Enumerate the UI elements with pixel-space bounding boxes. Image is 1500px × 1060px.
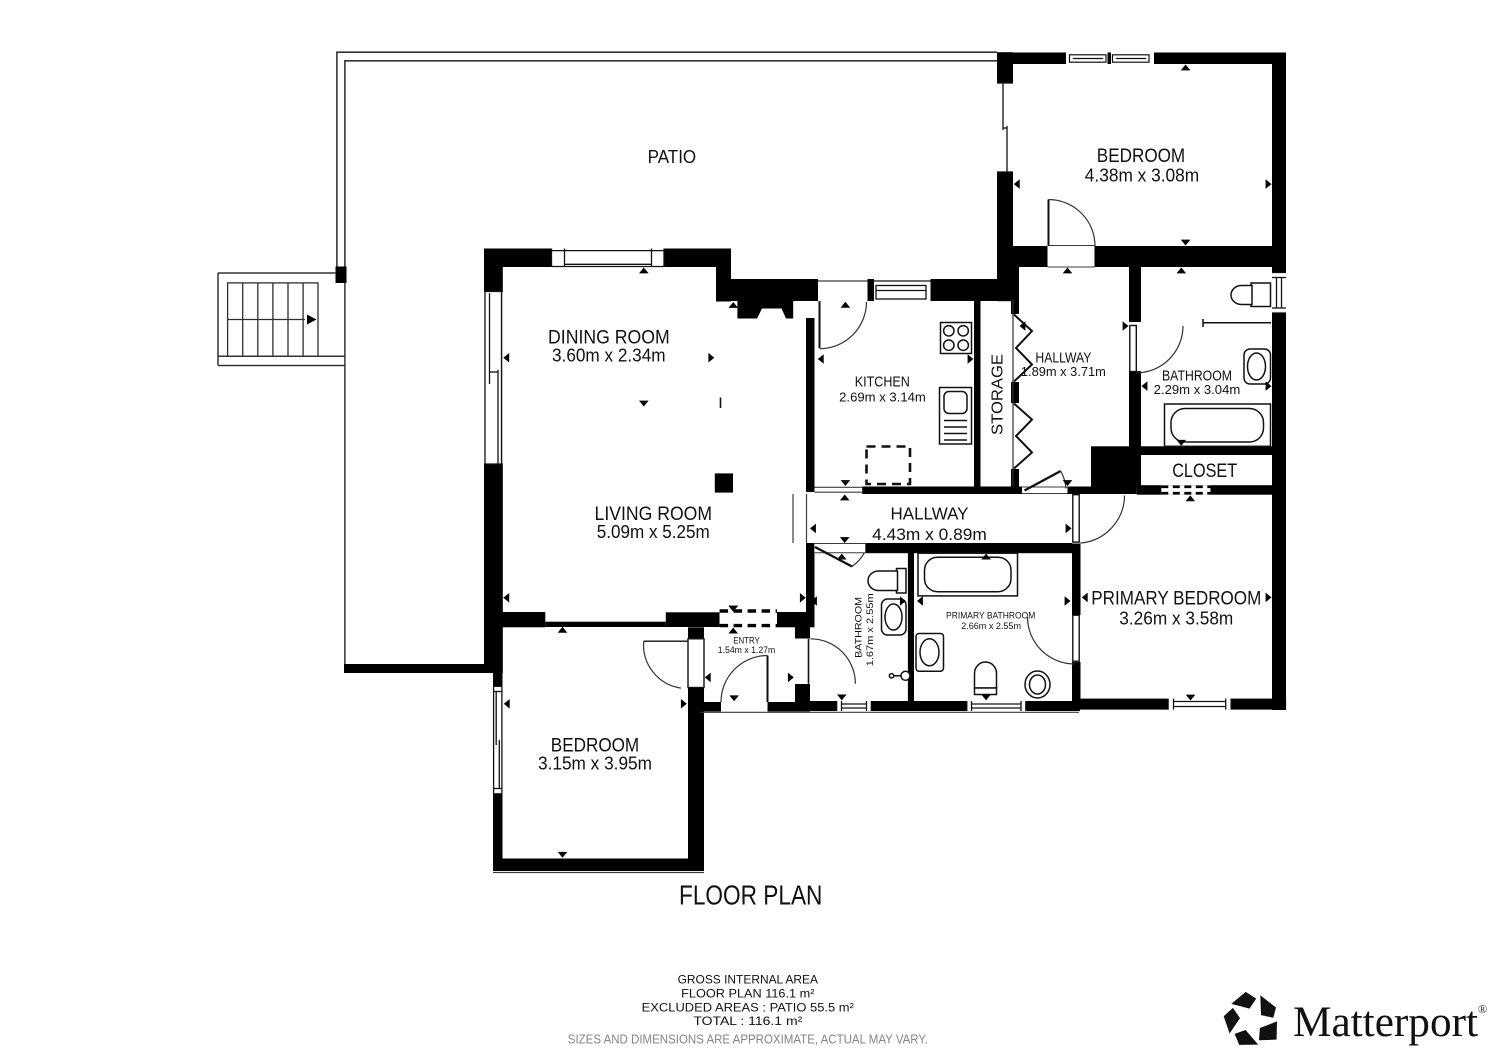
svg-text:BATHROOM: BATHROOM bbox=[1162, 369, 1232, 385]
svg-text:PRIMARY BATHROOM: PRIMARY BATHROOM bbox=[946, 611, 1035, 622]
svg-text:1.67m x 2.55m: 1.67m x 2.55m bbox=[865, 593, 875, 666]
svg-text:SIZES AND DIMENSIONS ARE APPRO: SIZES AND DIMENSIONS ARE APPROXIMATE, AC… bbox=[568, 1033, 928, 1047]
svg-text:ENTRY: ENTRY bbox=[733, 635, 760, 645]
svg-text:®: ® bbox=[1478, 1002, 1487, 1016]
svg-text:BATHROOM: BATHROOM bbox=[854, 597, 864, 658]
svg-text:3.26m x 3.58m: 3.26m x 3.58m bbox=[1119, 608, 1233, 629]
svg-text:4.38m x 3.08m: 4.38m x 3.08m bbox=[1085, 165, 1199, 186]
svg-text:GROSS INTERNAL AREA: GROSS INTERNAL AREA bbox=[678, 972, 818, 986]
svg-text:KITCHEN: KITCHEN bbox=[855, 375, 910, 391]
svg-text:1.89m x 3.71m: 1.89m x 3.71m bbox=[1021, 365, 1106, 379]
svg-text:PRIMARY BEDROOM: PRIMARY BEDROOM bbox=[1091, 588, 1261, 609]
svg-text:FLOOR PLAN 116.1 m²: FLOOR PLAN 116.1 m² bbox=[681, 987, 814, 1001]
svg-text:HALLWAY: HALLWAY bbox=[1035, 350, 1091, 366]
svg-text:Matterport: Matterport bbox=[1293, 999, 1478, 1046]
svg-text:EXCLUDED AREAS : PATIO 55.5 m: EXCLUDED AREAS : PATIO 55.5 m² bbox=[642, 1000, 854, 1014]
svg-text:3.15m x 3.95m: 3.15m x 3.95m bbox=[538, 753, 652, 774]
svg-text:STORAGE: STORAGE bbox=[989, 354, 1006, 435]
svg-text:1.54m x 1.27m: 1.54m x 1.27m bbox=[718, 645, 775, 655]
svg-text:TOTAL : 116.1 m²: TOTAL : 116.1 m² bbox=[693, 1014, 802, 1028]
svg-text:2.29m x 3.04m: 2.29m x 3.04m bbox=[1154, 383, 1241, 397]
svg-text:FLOOR PLAN: FLOOR PLAN bbox=[679, 879, 822, 910]
svg-text:5.09m x 5.25m: 5.09m x 5.25m bbox=[597, 521, 710, 542]
svg-text:CLOSET: CLOSET bbox=[1172, 461, 1237, 482]
svg-text:PATIO: PATIO bbox=[648, 147, 697, 167]
svg-text:2.69m x 3.14m: 2.69m x 3.14m bbox=[839, 390, 926, 404]
svg-text:HALLWAY: HALLWAY bbox=[891, 504, 969, 524]
svg-text:2.66m x 2.55m: 2.66m x 2.55m bbox=[961, 621, 1021, 632]
svg-text:4.43m x 0.89m: 4.43m x 0.89m bbox=[872, 525, 987, 544]
svg-text:3.60m x 2.34m: 3.60m x 2.34m bbox=[552, 345, 666, 366]
